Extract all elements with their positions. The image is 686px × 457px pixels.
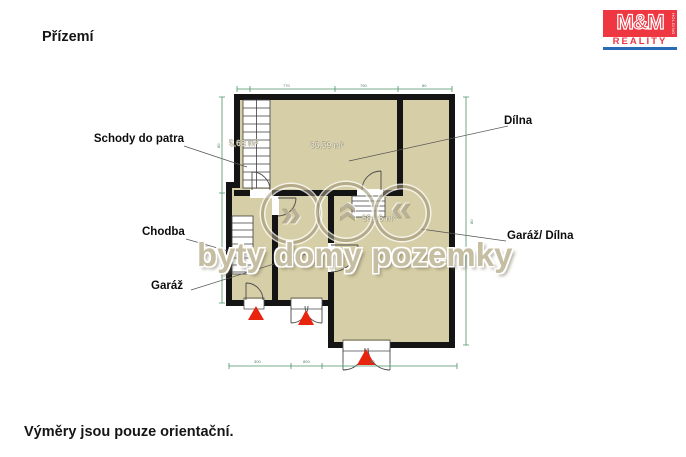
dim-right-1: 80 xyxy=(469,220,474,224)
logo-reality-text: REALITY xyxy=(603,37,677,50)
logo-top-block: M&M HOLDING xyxy=(603,10,677,37)
page-title: Přízemí xyxy=(42,29,94,45)
label-garaz-dilna: Garáž/ Dílna xyxy=(507,230,573,242)
dim-top-2: 790 xyxy=(360,83,367,88)
logo-mm-text: M&M xyxy=(616,11,663,34)
label-chodba: Chodba xyxy=(142,226,185,238)
dim-left-1: 80 xyxy=(216,144,221,148)
area-garaz-dilna: 68,96 m² xyxy=(362,213,396,223)
dim-bottom-3: 80 xyxy=(370,359,374,364)
label-garaz: Garáž xyxy=(151,280,183,292)
area-dilna: 35,59 m² xyxy=(310,140,344,150)
label-schody-do-patra: Schody do patra xyxy=(84,133,184,145)
stairs-cellar xyxy=(232,216,253,274)
floorplan-drawing xyxy=(0,0,686,457)
footer-note: Výměry jsou pouze orientační. xyxy=(24,424,234,440)
dim-bottom-1: 300 xyxy=(254,359,261,364)
area-schody: 5,68 m² xyxy=(229,138,258,148)
dim-top-3: 80 xyxy=(422,83,426,88)
mm-reality-logo: M&M HOLDING REALITY xyxy=(603,10,677,52)
label-dilna: Dílna xyxy=(504,115,532,127)
dim-top-1: 770 xyxy=(283,83,290,88)
floorplan-page: Přízemí Výměry jsou pouze orientační. Sc… xyxy=(0,0,686,457)
dim-bottom-2: 800 xyxy=(303,359,310,364)
logo-holding-text: HOLDING xyxy=(671,13,676,35)
